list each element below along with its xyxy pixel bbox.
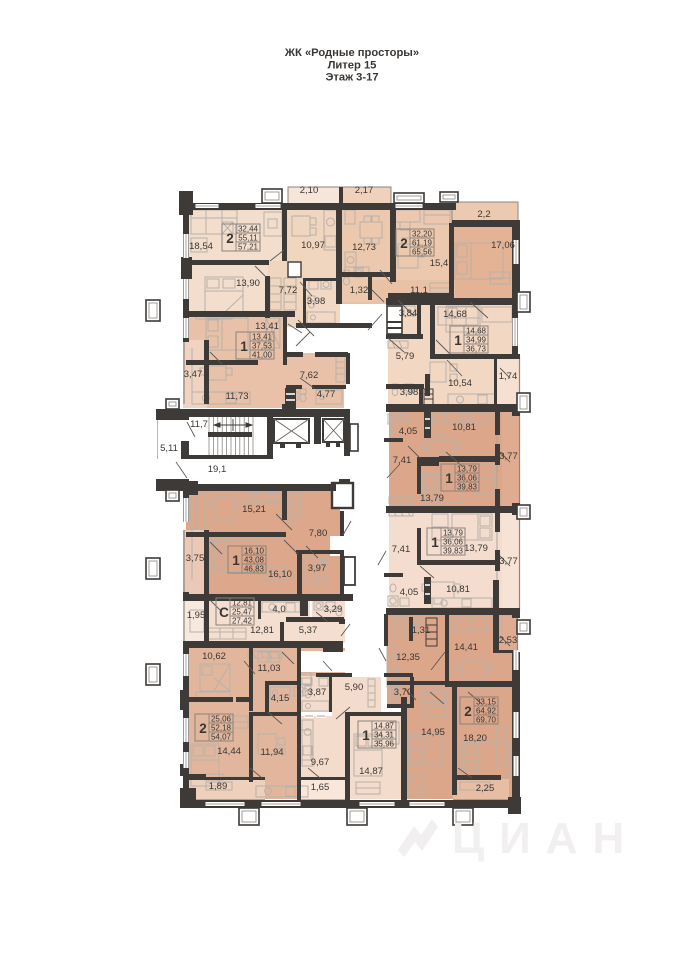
svg-text:32,44: 32,44 bbox=[238, 224, 259, 233]
svg-text:11,73: 11,73 bbox=[225, 391, 248, 402]
svg-text:3,70: 3,70 bbox=[394, 687, 413, 698]
svg-text:3,47: 3,47 bbox=[184, 369, 203, 380]
svg-text:10,54: 10,54 bbox=[448, 378, 472, 389]
svg-text:10,62: 10,62 bbox=[202, 651, 226, 662]
svg-text:1,74: 1,74 bbox=[499, 371, 518, 382]
svg-text:57,21: 57,21 bbox=[238, 242, 259, 251]
svg-text:13,79: 13,79 bbox=[420, 493, 444, 504]
svg-text:4,0: 4,0 bbox=[272, 604, 285, 615]
svg-text:2,10: 2,10 bbox=[300, 185, 319, 196]
svg-text:12,35: 12,35 bbox=[396, 652, 420, 663]
svg-text:3,98: 3,98 bbox=[307, 296, 326, 307]
svg-text:12,81: 12,81 bbox=[232, 598, 253, 607]
svg-text:11,03: 11,03 bbox=[257, 663, 280, 674]
svg-text:14,68: 14,68 bbox=[466, 326, 487, 335]
svg-text:С: С bbox=[219, 605, 229, 620]
svg-text:3,97: 3,97 bbox=[308, 563, 327, 574]
svg-text:13,90: 13,90 bbox=[236, 278, 260, 289]
svg-text:18,54: 18,54 bbox=[189, 241, 213, 252]
svg-text:7,72: 7,72 bbox=[279, 285, 298, 296]
svg-text:13,79: 13,79 bbox=[464, 543, 488, 554]
svg-text:2: 2 bbox=[199, 721, 207, 736]
svg-text:15,21: 15,21 bbox=[242, 504, 266, 515]
svg-text:12,81: 12,81 bbox=[250, 625, 274, 636]
svg-text:43,08: 43,08 bbox=[244, 555, 265, 564]
svg-text:7,41: 7,41 bbox=[392, 544, 411, 555]
svg-text:5,79: 5,79 bbox=[396, 351, 415, 362]
svg-text:61,19: 61,19 bbox=[412, 238, 433, 247]
svg-text:36,06: 36,06 bbox=[457, 473, 478, 482]
svg-text:2: 2 bbox=[464, 704, 472, 719]
svg-text:16,10: 16,10 bbox=[268, 569, 292, 580]
svg-text:3,75: 3,75 bbox=[186, 553, 205, 564]
svg-text:Этаж 3-17: Этаж 3-17 bbox=[325, 72, 378, 84]
svg-text:3,77: 3,77 bbox=[499, 556, 518, 567]
svg-text:1,89: 1,89 bbox=[209, 781, 228, 792]
svg-text:2,17: 2,17 bbox=[355, 185, 374, 196]
svg-text:17,06: 17,06 bbox=[491, 240, 515, 251]
svg-text:36,73: 36,73 bbox=[466, 344, 487, 353]
svg-text:14,44: 14,44 bbox=[217, 746, 241, 757]
svg-text:4,05: 4,05 bbox=[399, 426, 418, 437]
svg-text:4,77: 4,77 bbox=[317, 389, 336, 400]
svg-text:35,96: 35,96 bbox=[374, 739, 395, 748]
svg-text:25,06: 25,06 bbox=[211, 714, 232, 723]
svg-text:3,87: 3,87 bbox=[308, 687, 327, 698]
svg-text:27,42: 27,42 bbox=[232, 616, 253, 625]
svg-text:10,81: 10,81 bbox=[446, 584, 470, 595]
svg-text:3,84: 3,84 bbox=[399, 308, 418, 319]
svg-text:34,31: 34,31 bbox=[374, 730, 395, 739]
svg-text:52,18: 52,18 bbox=[211, 723, 232, 732]
svg-text:1,32: 1,32 bbox=[350, 285, 369, 296]
svg-text:11,1: 11,1 bbox=[410, 285, 428, 296]
svg-text:14,95: 14,95 bbox=[421, 727, 445, 738]
svg-text:3,29: 3,29 bbox=[324, 604, 343, 615]
svg-text:7,80: 7,80 bbox=[309, 528, 328, 539]
svg-text:ЖК «Родные просторы»: ЖК «Родные просторы» bbox=[284, 47, 419, 59]
svg-text:13,41: 13,41 bbox=[255, 321, 279, 332]
svg-text:3,98: 3,98 bbox=[400, 387, 419, 398]
svg-text:2: 2 bbox=[226, 231, 234, 246]
svg-text:39,83: 39,83 bbox=[443, 546, 464, 555]
svg-text:32,20: 32,20 bbox=[412, 229, 433, 238]
svg-text:1: 1 bbox=[454, 333, 462, 348]
svg-text:5,37: 5,37 bbox=[299, 625, 318, 636]
svg-text:19,1: 19,1 bbox=[208, 464, 227, 475]
svg-text:5,90: 5,90 bbox=[345, 682, 364, 693]
svg-text:7,41: 7,41 bbox=[393, 455, 412, 466]
svg-text:1: 1 bbox=[240, 339, 248, 354]
svg-text:2,53: 2,53 bbox=[499, 635, 518, 646]
svg-text:41,00: 41,00 bbox=[252, 350, 273, 359]
svg-text:14,87: 14,87 bbox=[359, 766, 383, 777]
svg-text:16,10: 16,10 bbox=[244, 546, 265, 555]
svg-text:1: 1 bbox=[431, 535, 439, 550]
svg-text:15,4: 15,4 bbox=[430, 258, 449, 269]
svg-text:39,83: 39,83 bbox=[457, 482, 478, 491]
svg-text:69,70: 69,70 bbox=[476, 715, 497, 724]
svg-text:3,77: 3,77 bbox=[499, 451, 518, 462]
svg-text:10,97: 10,97 bbox=[301, 240, 325, 251]
svg-text:13,41: 13,41 bbox=[252, 332, 273, 341]
svg-text:64,92: 64,92 bbox=[476, 706, 497, 715]
svg-text:25,47: 25,47 bbox=[232, 607, 253, 616]
svg-text:54,07: 54,07 bbox=[211, 732, 232, 741]
svg-text:11,94: 11,94 bbox=[260, 747, 283, 758]
svg-text:33,15: 33,15 bbox=[476, 697, 497, 706]
svg-text:34,99: 34,99 bbox=[466, 335, 487, 344]
svg-text:13,79: 13,79 bbox=[457, 464, 478, 473]
svg-text:55,11: 55,11 bbox=[238, 233, 258, 242]
svg-text:2,2: 2,2 bbox=[477, 209, 490, 220]
svg-text:11,7: 11,7 bbox=[190, 419, 208, 430]
svg-text:ЦИАН: ЦИАН bbox=[452, 814, 639, 863]
svg-text:36,06: 36,06 bbox=[443, 537, 464, 546]
svg-text:1,95: 1,95 bbox=[187, 610, 206, 621]
svg-text:9,67: 9,67 bbox=[311, 757, 330, 768]
svg-text:1: 1 bbox=[362, 728, 370, 743]
svg-text:10,81: 10,81 bbox=[452, 422, 476, 433]
svg-text:4,15: 4,15 bbox=[271, 693, 290, 704]
svg-text:7,62: 7,62 bbox=[300, 370, 319, 381]
svg-text:Литер 15: Литер 15 bbox=[328, 60, 377, 72]
svg-text:13,79: 13,79 bbox=[443, 528, 464, 537]
svg-text:65,56: 65,56 bbox=[412, 247, 433, 256]
svg-text:2: 2 bbox=[400, 236, 408, 251]
svg-text:12,73: 12,73 bbox=[352, 242, 376, 253]
svg-text:14,87: 14,87 bbox=[374, 721, 395, 730]
svg-text:1,65: 1,65 bbox=[311, 782, 330, 793]
svg-text:1: 1 bbox=[232, 553, 240, 568]
svg-text:18,20: 18,20 bbox=[463, 733, 487, 744]
svg-text:1: 1 bbox=[445, 471, 453, 486]
svg-text:37,53: 37,53 bbox=[252, 341, 273, 350]
svg-text:14,41: 14,41 bbox=[454, 642, 478, 653]
svg-text:5,11: 5,11 bbox=[160, 443, 178, 454]
svg-text:2,25: 2,25 bbox=[476, 783, 495, 794]
svg-text:1,31: 1,31 bbox=[412, 625, 431, 636]
svg-text:14,68: 14,68 bbox=[443, 309, 467, 320]
svg-text:46,83: 46,83 bbox=[244, 564, 265, 573]
svg-text:4,05: 4,05 bbox=[400, 587, 419, 598]
